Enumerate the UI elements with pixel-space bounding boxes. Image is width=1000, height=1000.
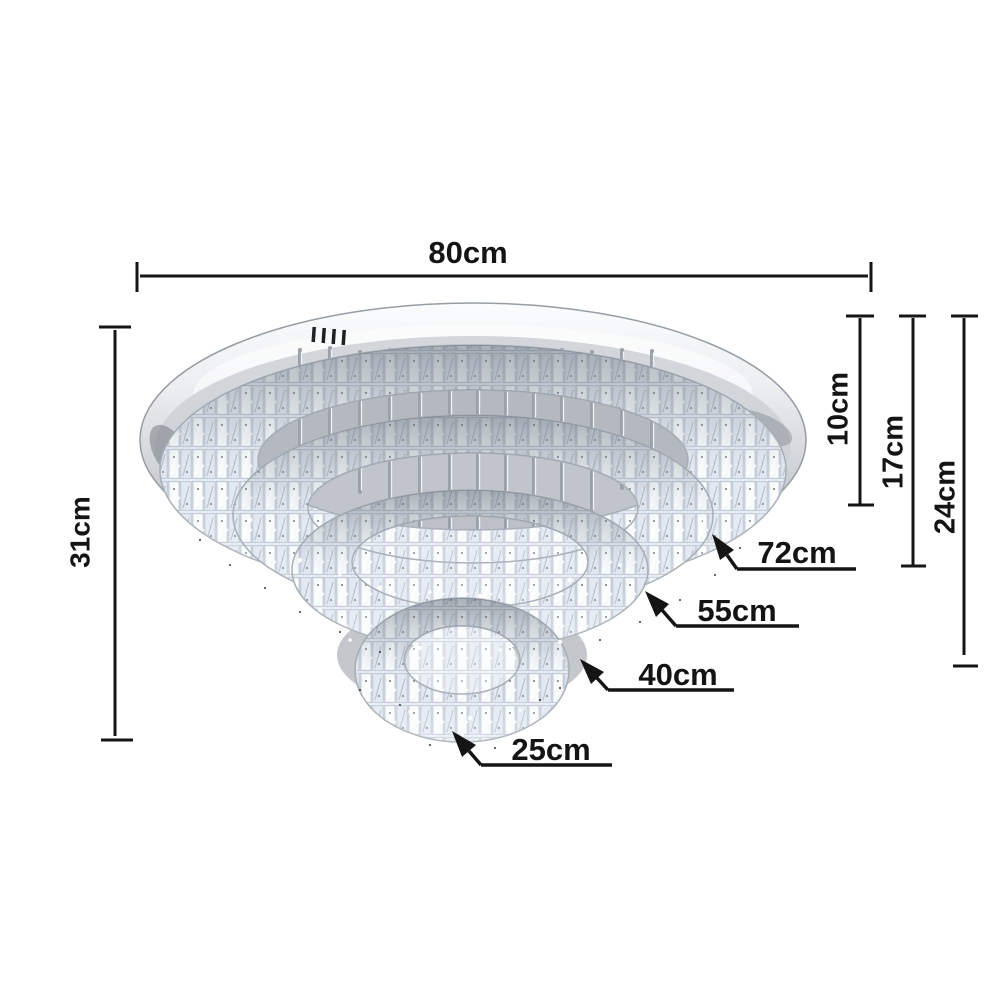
label-55cm: 55cm (697, 593, 776, 628)
callout-ring-55cm: 55cm (645, 591, 799, 628)
dimension-tier2-17cm: 17cm (878, 316, 926, 566)
label-72cm: 72cm (757, 535, 836, 570)
label-31cm: 31cm (64, 496, 95, 568)
callout-leader (727, 555, 737, 569)
dimension-tier1-10cm: 10cm (823, 316, 874, 505)
label-10cm: 10cm (823, 372, 855, 446)
dimension-height-31cm: 31cm (64, 327, 133, 740)
callout-leader (597, 678, 608, 690)
dimension-width-80cm: 80cm (137, 235, 871, 292)
diagram-canvas: 80cm 31cm 10cm 17cm 24cm 72cm 55cm (0, 0, 1000, 1000)
dimension-tier3-24cm: 24cm (930, 316, 978, 666)
product-dimension-diagram: 80cm 31cm 10cm 17cm 24cm 72cm 55cm (0, 0, 1000, 1000)
callout-ring-40cm: 40cm (580, 657, 734, 692)
label-25cm: 25cm (511, 732, 590, 767)
crystal-ring-25cm (355, 598, 569, 742)
callout-leader (469, 751, 481, 765)
label-17cm: 17cm (878, 415, 910, 489)
label-80cm: 80cm (428, 235, 507, 270)
label-40cm: 40cm (638, 657, 717, 692)
callout-leader (662, 610, 676, 626)
label-24cm: 24cm (930, 460, 962, 534)
